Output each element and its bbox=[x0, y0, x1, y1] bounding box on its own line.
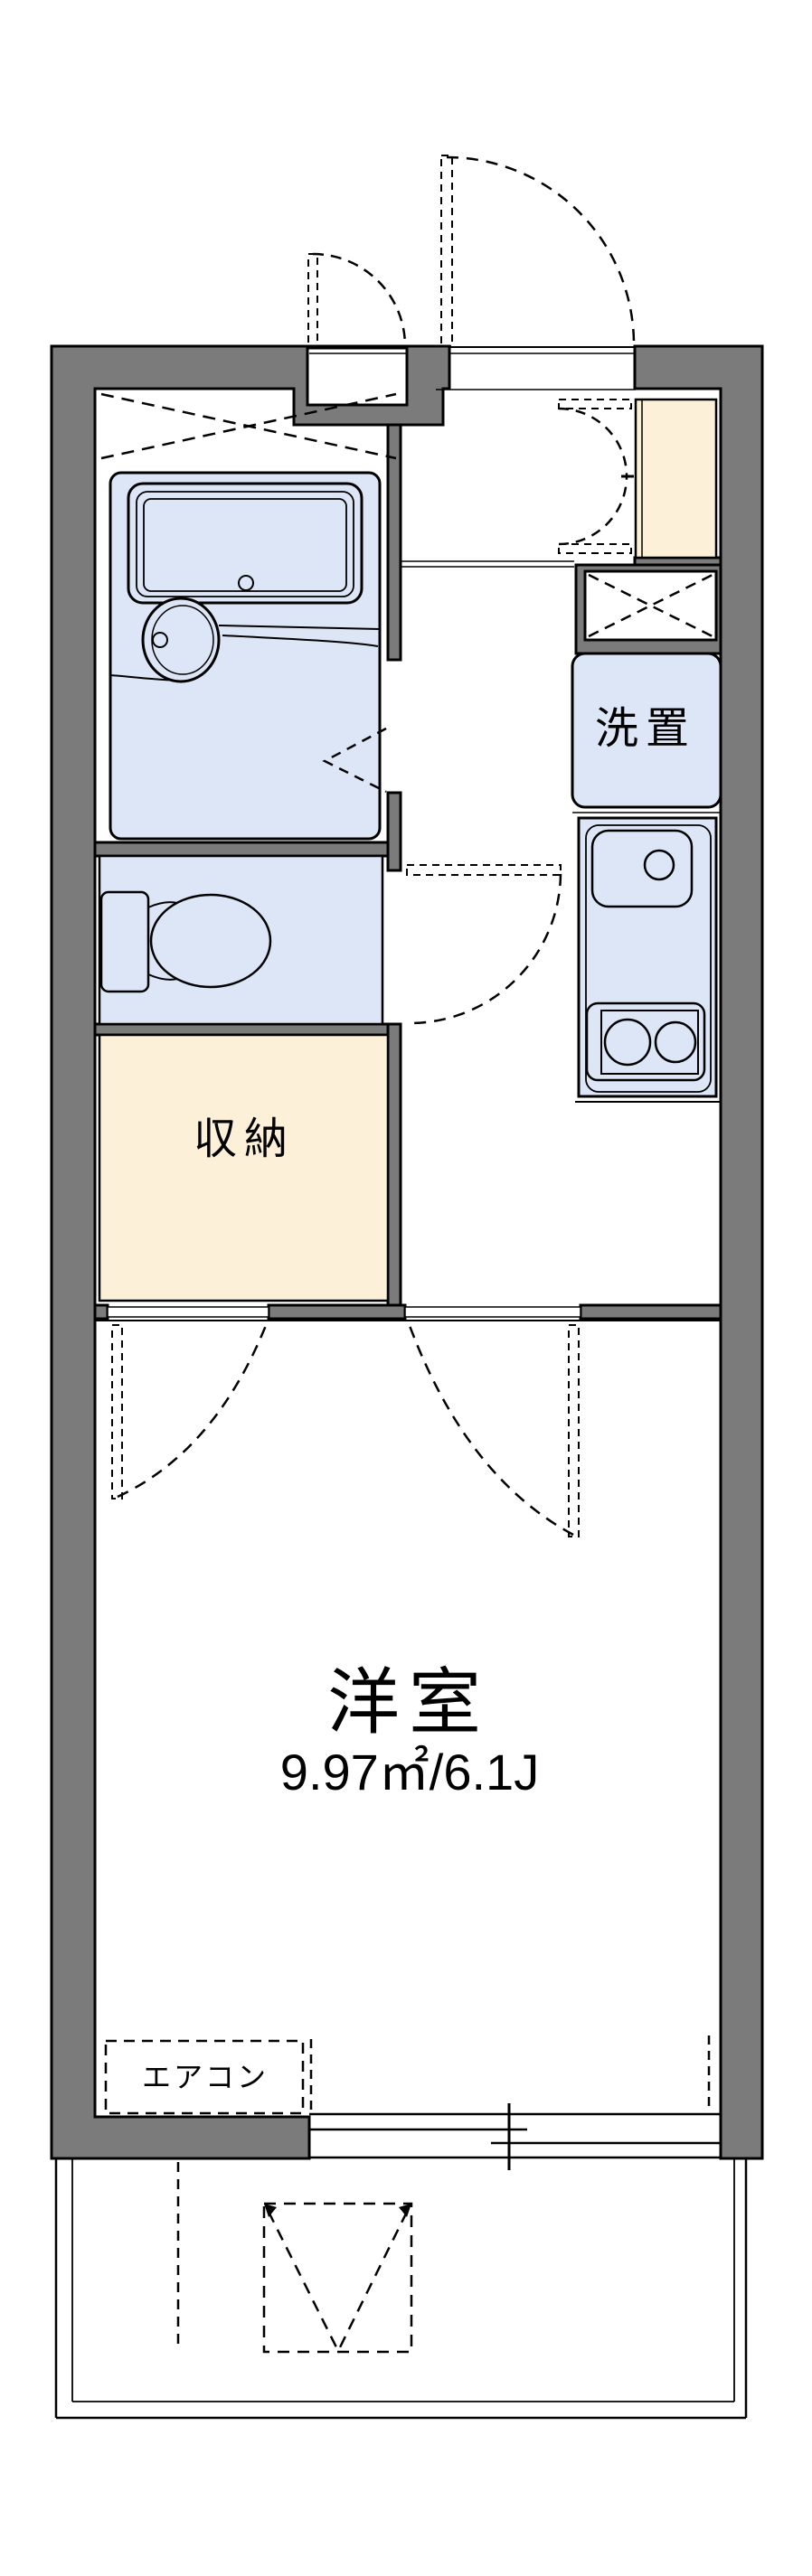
wall-room-top-left-stub bbox=[95, 1305, 108, 1319]
shoe-cabinet-door-leaf-top bbox=[559, 400, 631, 409]
main-room-size-label: 9.97㎡/6.1J bbox=[280, 1747, 539, 1798]
wall-hall-mid bbox=[388, 793, 401, 870]
closet-door-swing bbox=[118, 1323, 267, 1497]
evacuation-hatch-box bbox=[264, 2204, 411, 2352]
genkan-step bbox=[401, 561, 574, 567]
entrance bbox=[436, 155, 636, 390]
closet-door-leaf bbox=[112, 1325, 122, 1499]
aircon-label: エアコン bbox=[142, 2063, 269, 2092]
washer-space-label: 洗置 bbox=[595, 708, 696, 751]
wall-toilet-storage bbox=[95, 1024, 401, 1035]
balcony bbox=[56, 2158, 746, 2418]
shoe-cabinet-door-swing-top bbox=[559, 409, 627, 476]
room-entry-opening-frame bbox=[405, 1307, 581, 1317]
evacuation-hatch-v-left bbox=[269, 2212, 336, 2347]
wash-basin-outer bbox=[143, 598, 219, 682]
entrance-door-leaf bbox=[441, 155, 452, 346]
evacuation-hatch-v-right bbox=[340, 2212, 407, 2347]
meter-box-door-swing bbox=[313, 254, 405, 346]
bathroom bbox=[110, 473, 386, 839]
storage-closet bbox=[99, 1035, 388, 1301]
wall-room-top-right bbox=[581, 1305, 721, 1319]
toilet-door-swing bbox=[410, 874, 561, 1023]
wall-room-top-mid bbox=[269, 1305, 405, 1319]
meter-box-door-leaf bbox=[308, 254, 317, 346]
toilet-door-leaf bbox=[407, 865, 561, 875]
toilet-tank bbox=[101, 892, 148, 992]
overhead-cupboard-box bbox=[585, 571, 716, 640]
storage-label: 収納 bbox=[194, 1118, 295, 1161]
kitchen bbox=[572, 813, 721, 1102]
meter-box-niche bbox=[307, 348, 407, 405]
shoe-cabinet-door-swing-bottom bbox=[559, 476, 627, 544]
toilet-bowl bbox=[151, 895, 270, 987]
wall-hall-upper bbox=[388, 425, 401, 660]
sliding-window bbox=[309, 2103, 721, 2170]
room-door-swing bbox=[409, 1323, 573, 1535]
overhead-cupboard bbox=[585, 571, 716, 640]
kitchen-sink bbox=[592, 831, 692, 907]
floorplan-canvas: 洗置 収納 洋室 9.97㎡/6.1J エアコン bbox=[0, 0, 812, 2576]
wall-bath-toilet bbox=[95, 842, 401, 856]
entrance-door-swing bbox=[447, 157, 634, 344]
floorplan-drawing bbox=[0, 0, 812, 2576]
toilet-room bbox=[99, 856, 561, 1024]
kitchen-faucet bbox=[645, 851, 674, 879]
shoe-cabinet-door-leaf-bottom bbox=[559, 544, 631, 553]
shoe-cabinet-body bbox=[636, 400, 716, 558]
closet-opening-frame bbox=[108, 1307, 269, 1317]
room-door-leaf bbox=[569, 1325, 579, 1537]
main-room-label: 洋室 bbox=[327, 1667, 490, 1739]
wall-hall-lower bbox=[388, 1024, 401, 1305]
shoe-cabinet bbox=[559, 400, 716, 558]
